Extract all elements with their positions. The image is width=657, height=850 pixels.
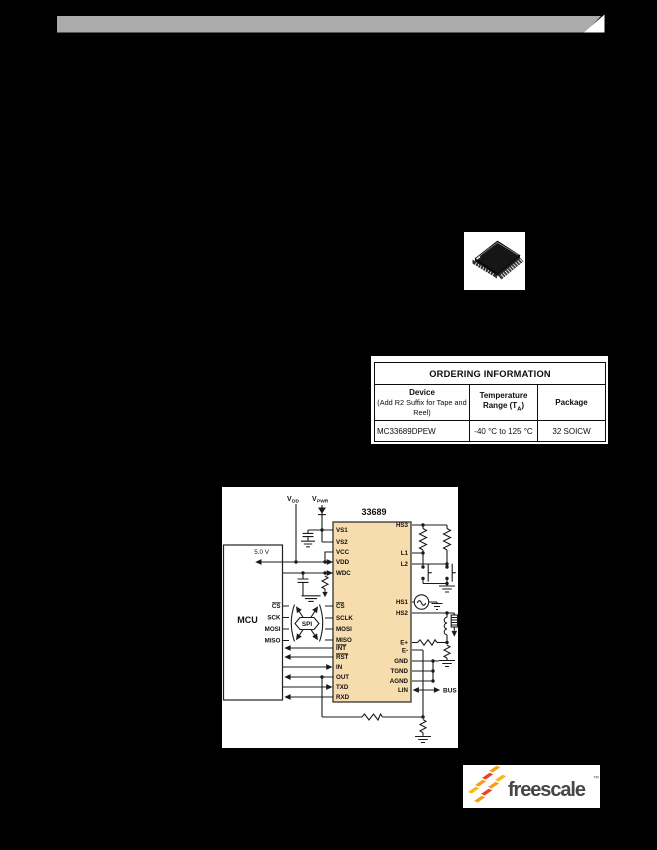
pin-label: RST [336,654,349,661]
header-bar [57,16,601,33]
pin-label: CS [272,603,281,610]
supply-5v-label: 5.0 V [254,549,270,556]
pin-label: IN [336,664,343,671]
ordering-information-table: ORDERING INFORMATION Device (Add R2 Suff… [374,362,606,442]
pin-label: GND [394,658,408,665]
spi-label: SPI [302,621,312,628]
ordering-table-title: ORDERING INFORMATION [375,363,606,385]
ordering-table-row: MC33689DPEW -40 °C to 125 °C 32 SOICW [375,421,606,442]
trademark-symbol: ™ [593,775,599,782]
vdd-supply-sub: DD [292,499,299,505]
pin-label: L1 [401,550,409,557]
pin-label: VS2 [336,539,348,546]
pin-label: VS1 [336,527,348,534]
pin-label: LIN [398,687,408,694]
pin-label: E+ [400,640,408,647]
ordering-col-temperature: Temperature Range (TA) [470,385,538,421]
pin-label: VDD [336,559,350,566]
pin-label: MOSI [336,626,352,633]
pin-label: L2 [401,561,409,568]
freescale-logo: freescale ™ [463,765,600,808]
pin-label: RXD [336,694,350,701]
package-photo-soic [464,232,525,290]
pin-label: HS3 [396,522,409,529]
pin-label: MISO [336,637,352,644]
application-circuit-figure: V DD V PWR 33689 MCU 5.0 V SPI BUS CS SC… [222,487,458,748]
pin-label: SCLK [336,615,353,622]
pin-label: OUT [336,674,349,681]
pin-label: SCK [267,615,281,622]
pin-label: VCC [336,549,350,556]
pin-label: E- [402,648,408,655]
pin-label: TGND [390,668,408,675]
mcu-label: MCU [237,615,258,625]
datasheet-page: ORDERING INFORMATION Device (Add R2 Suff… [0,0,657,850]
pin-label: TXD [336,684,349,691]
temperature-value: -40 °C to 125 °C [470,421,538,442]
pin-label: MISO [265,638,281,645]
pin-label: INT [336,645,346,652]
pin-label: WDC [336,570,351,577]
device-value: MC33689DPEW [375,421,470,442]
header-banner [0,0,657,40]
vpwr-supply-sub: PWR [317,499,329,505]
pin-label: MOSI [265,626,281,633]
pin-label: AGND [390,678,409,685]
package-value: 32 SOICW [538,421,606,442]
ic-part-number: 33689 [361,507,386,517]
temp-header-line2: Range (T [483,401,517,410]
package-header-label: Package [555,398,587,407]
pin-label: HS1 [396,599,409,606]
ordering-col-package: Package [538,385,606,421]
freescale-wordmark: freescale [508,779,586,801]
ordering-col-device: Device (Add R2 Suffix for Tape and Reel) [375,385,470,421]
ordering-information-region: ORDERING INFORMATION Device (Add R2 Suff… [371,356,608,444]
pin-label: CS [336,603,345,610]
device-header-note: (Add R2 Suffix for Tape and Reel) [377,398,466,417]
temp-header-line1: Temperature [480,391,528,400]
pin-label: HS2 [396,610,409,617]
device-header-label: Device [409,388,435,397]
bus-label: BUS [443,688,457,695]
temp-header-close: ) [521,401,524,410]
